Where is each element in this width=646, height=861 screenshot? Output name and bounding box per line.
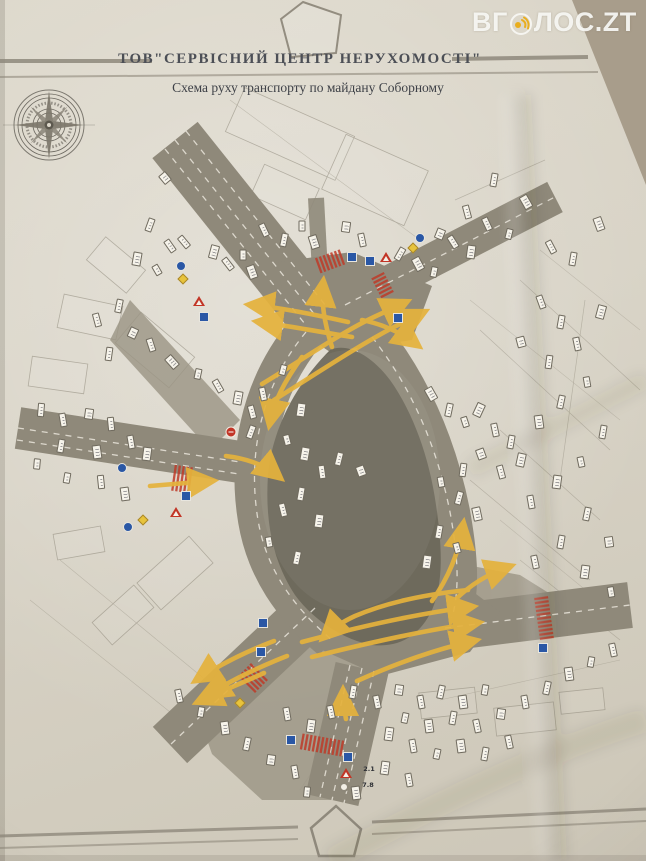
blue-square-sign-icon <box>258 618 268 628</box>
map-sign-label <box>292 550 302 565</box>
map-sign-label <box>177 234 191 249</box>
map-sign-label <box>608 642 618 657</box>
map-sign-label <box>472 718 482 733</box>
map-sign-label <box>144 217 155 233</box>
map-sign-label <box>372 694 382 709</box>
map-sign-label <box>545 239 558 255</box>
blue-square-sign-icon <box>286 735 296 745</box>
map-sign-label <box>84 408 94 420</box>
map-sign-label <box>556 394 566 409</box>
red-triangle-sign-icon <box>193 296 205 306</box>
map-sign-label <box>520 694 529 709</box>
map-sign-label <box>314 513 325 528</box>
map-sign-label <box>471 506 483 522</box>
map-sign-label <box>265 536 274 548</box>
map-sign-label <box>462 204 472 219</box>
map-sign-label <box>266 754 276 766</box>
blue-circle-sign-icon <box>415 233 425 243</box>
map-sign-label <box>432 748 441 760</box>
map-sign-label <box>564 666 575 681</box>
map-sign-label <box>454 490 464 505</box>
map-sign-label <box>326 704 336 719</box>
map-sign-label <box>120 486 131 501</box>
map-sign-label <box>393 246 406 262</box>
map-sign-label <box>232 390 243 405</box>
map-sign-label <box>142 446 153 461</box>
map-sign-label <box>258 222 270 238</box>
map-sign-label <box>408 738 417 753</box>
map-sign-label <box>598 424 607 439</box>
map-sign-label <box>506 434 515 449</box>
map-sign-label <box>355 464 367 477</box>
blue-square-sign-icon <box>343 752 353 762</box>
map-sign-label <box>519 194 534 211</box>
map-sign-label <box>114 298 124 313</box>
map-sign-label <box>296 486 305 501</box>
blue-square-sign-icon <box>347 252 357 262</box>
map-sign-label <box>394 684 404 696</box>
map-sign-label <box>303 786 311 798</box>
map-sign-label <box>583 376 592 388</box>
map-sign-label <box>592 216 605 232</box>
map-sign-label <box>220 720 231 735</box>
map-sign-label <box>587 656 596 668</box>
map-sign-label <box>193 368 202 380</box>
red-triangle-sign-icon <box>340 768 352 778</box>
map-sign-label <box>404 772 413 787</box>
map-sign-label <box>504 228 513 240</box>
map-sign-label <box>545 355 554 370</box>
map-sign-label <box>459 463 468 478</box>
map-sign-label <box>572 336 582 351</box>
map-sign-label <box>211 378 224 394</box>
map-sign-label <box>92 312 102 327</box>
map-sign-label <box>174 688 184 703</box>
map-sign-label <box>576 456 585 468</box>
map-sign-label <box>568 251 577 266</box>
map-sign-label <box>481 216 493 232</box>
blue-square-sign-icon <box>199 312 209 322</box>
blue-square-sign-icon <box>181 491 191 501</box>
map-sign-label <box>279 232 289 247</box>
map-sign-label <box>240 250 247 261</box>
map-sign-label <box>535 294 546 310</box>
map-sign-label <box>504 734 514 749</box>
map-sign-label <box>278 502 288 517</box>
map-sign-label <box>437 476 446 488</box>
map-sign-label <box>341 221 351 233</box>
map-sign-label <box>357 232 367 247</box>
sign-code-label: 2.1 <box>363 765 375 773</box>
map-sign-label <box>466 244 477 259</box>
yellow-diamond-sign-icon <box>234 697 245 708</box>
map-sign-label <box>429 266 438 278</box>
map-sign-label <box>348 684 357 699</box>
map-sign-label <box>444 402 454 417</box>
map-sign-label <box>496 708 506 720</box>
map-sign-label <box>299 221 306 232</box>
map-sign-label <box>258 386 268 401</box>
map-sign-label <box>475 447 487 460</box>
map-sign-label <box>221 256 235 271</box>
blue-square-sign-icon <box>365 256 375 266</box>
blue-circle-sign-icon <box>123 522 133 532</box>
map-sign-label <box>446 234 459 250</box>
map-sign-label <box>127 326 140 340</box>
map-sign-label <box>299 446 310 461</box>
map-sign-label <box>384 726 395 741</box>
map-sign-label <box>530 554 540 569</box>
map-sign-label <box>496 464 506 479</box>
red-triangle-sign-icon <box>170 507 182 517</box>
map-sign-label <box>282 434 292 446</box>
map-sign-label <box>56 438 65 453</box>
white-circle-sign-icon <box>339 782 349 792</box>
blue-square-sign-icon <box>393 313 403 323</box>
map-sign-label <box>604 536 614 548</box>
map-sign-label <box>607 586 616 598</box>
yellow-diamond-sign-icon <box>177 273 188 284</box>
blue-circle-sign-icon <box>176 261 186 271</box>
map-sign-label <box>416 694 425 709</box>
map-sign-label <box>131 251 142 266</box>
map-sign-label <box>164 354 180 370</box>
map-sign-label <box>63 472 72 484</box>
map-sign-label <box>458 694 469 709</box>
sign-code-label: 7.8 <box>362 781 374 789</box>
red-circle-sign-icon <box>226 427 237 438</box>
red-triangle-sign-icon <box>380 252 392 262</box>
map-sign-label <box>456 738 467 753</box>
map-sign-label <box>306 718 317 733</box>
map-sign-label <box>282 706 291 721</box>
map-sign-label <box>580 564 591 579</box>
map-sign-label <box>411 256 426 273</box>
map-sign-label <box>58 412 67 427</box>
map-sign-label <box>434 227 446 241</box>
map-sign-label <box>33 458 41 470</box>
map-sign-label <box>97 475 105 490</box>
map-sign-label <box>290 764 299 779</box>
blue-circle-sign-icon <box>117 463 127 473</box>
map-sign-label <box>318 465 327 480</box>
map-sign-label <box>452 542 462 554</box>
map-sign-label <box>436 684 446 699</box>
map-sign-label <box>163 238 177 253</box>
map-sign-label <box>556 534 565 549</box>
photo-of-traffic-scheme-document: ТОВ"СЕРВІСНИЙ ЦЕНТР НЕРУХОМОСТІ" Схема р… <box>0 0 646 861</box>
map-sign-label <box>351 785 362 800</box>
map-sign-label <box>515 452 527 468</box>
map-sign-label <box>380 760 391 775</box>
map-sign-label <box>481 684 490 696</box>
map-sign-label <box>434 524 443 539</box>
map-sign-label <box>146 337 157 352</box>
map-sign-label <box>534 414 545 429</box>
map-sign-label <box>526 494 535 509</box>
map-sign-label <box>515 336 527 349</box>
map-sign-label <box>107 417 115 432</box>
map-sign-label <box>472 402 486 418</box>
map-sign-label <box>595 304 607 320</box>
map-sign-label <box>197 706 206 718</box>
map-sign-label <box>92 444 103 459</box>
map-sign-label <box>242 736 252 751</box>
map-sign-label <box>158 171 172 185</box>
yellow-diamond-sign-icon <box>137 514 148 525</box>
map-sign-label <box>480 746 489 761</box>
map-sign-label <box>126 434 135 449</box>
map-sign-label <box>400 712 409 724</box>
blue-square-sign-icon <box>256 647 266 657</box>
yellow-diamond-sign-icon <box>407 242 418 253</box>
map-sign-label <box>296 402 307 417</box>
map-sign-label <box>245 264 258 280</box>
map-sign-label <box>490 422 500 437</box>
map-sign-label <box>556 314 565 329</box>
map-sign-label <box>334 451 344 466</box>
map-sign-label <box>308 234 321 250</box>
map-sign-label <box>208 244 220 260</box>
map-sign-label <box>448 710 457 725</box>
map-sign-label <box>278 364 288 376</box>
map-sign-label <box>247 404 257 419</box>
map-sign-label <box>151 263 163 276</box>
map-sign-label <box>105 347 114 362</box>
map-sign-label <box>424 386 439 403</box>
map-sign-label <box>422 554 433 569</box>
map-sign-label <box>424 718 435 733</box>
map-sign-label <box>552 474 563 489</box>
map-sign-label <box>245 424 256 440</box>
blue-square-sign-icon <box>538 643 548 653</box>
map-annotation-layer: 2.17.8 <box>0 0 646 861</box>
map-sign-label <box>37 403 45 418</box>
map-sign-label <box>489 172 498 187</box>
map-sign-label <box>582 506 592 521</box>
map-sign-label <box>460 416 470 429</box>
map-sign-label <box>542 680 552 695</box>
